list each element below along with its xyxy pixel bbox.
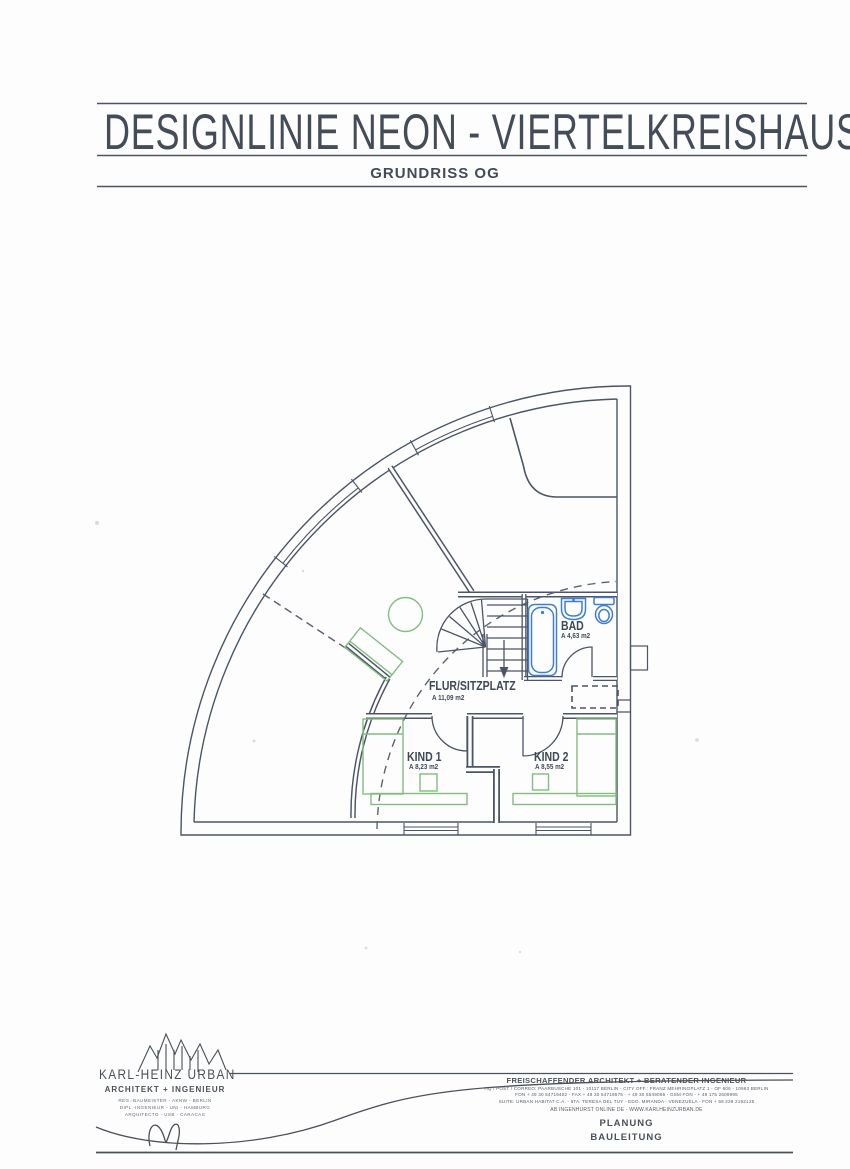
footer-heading: FREISCHAFFENDER ARCHITEKT + BERATENDER I… (460, 1077, 793, 1085)
architect-credential-1: REG.-BAUMEISTER - AKNW - BERLIN (100, 1099, 230, 1104)
loft-hatch-dashed-rect (572, 686, 618, 708)
architect-credential-2: DIPL.-INGENIEUR - UNI - HAMBURG (100, 1106, 230, 1111)
bed-kind-1 (363, 719, 403, 794)
stool-kind-2 (533, 774, 549, 790)
curved-partition-top-room (510, 418, 617, 497)
right-wall-details (617, 646, 648, 712)
service-planung: PLANUNG (460, 1119, 793, 1129)
washbasin (562, 599, 586, 620)
architect-credential-3: ARQUITECTO - USB - CARACAS (100, 1113, 230, 1118)
room-area-flur: A 11,09 m2 (432, 694, 471, 702)
round-table (389, 598, 423, 632)
desk-kind-2 (513, 794, 616, 805)
bathtub (529, 605, 557, 676)
logo-signature-squiggle (149, 1124, 179, 1150)
service-bauleitung: BAULEITUNG (460, 1133, 793, 1143)
sheet-title: DESIGNLINIE NEON - VIERTELKREISHAUS (104, 107, 850, 157)
footer-contact-block: FREISCHAFFENDER ARCHITEKT + BERATENDER I… (460, 1077, 793, 1142)
bath-door (562, 647, 593, 678)
stool-kind-1 (420, 774, 437, 791)
room-area-kind1: A 8,23 m2 (409, 763, 444, 771)
room-area-bad: A 4,63 m2 (561, 632, 596, 640)
footer-address-line: HQ / POST / CORREO: PAARBUSCHE 101 - 101… (460, 1087, 793, 1092)
bed-kind-2 (577, 719, 616, 796)
spiral-staircase (437, 599, 528, 680)
sofa (345, 628, 403, 681)
room-area-kind2: A 8,55 m2 (535, 763, 570, 771)
footer-web-line: AB INGENHURST ONLINE DE - WWW.KARLHEINZU… (460, 1108, 793, 1113)
kind1-door (432, 716, 467, 751)
scan-specks (95, 521, 699, 953)
footer-phone-line: FON + 49 30 54719402 - FAX + 49 30 54719… (460, 1093, 793, 1098)
chimney-block (631, 646, 648, 670)
architect-role: ARCHITEKT + INGENIEUR (100, 1086, 230, 1094)
room-label-flur: FLUR/SITZPLATZ (429, 680, 532, 693)
scanned-plan-sheet: DESIGNLINIE NEON - VIERTELKREISHAUS GRUN… (0, 0, 850, 1169)
sheet-subtitle: GRUNDRISS OG (97, 166, 773, 181)
desk-kind-1 (371, 794, 467, 805)
wall-niche (617, 700, 631, 712)
bottom-windows (404, 823, 591, 835)
architect-name: KARL-HEINZ URBAN (99, 1068, 254, 1082)
footer-venezuela-line: SUITE: URBAN HABITAT C.A. - 5TA. TERESA … (460, 1100, 793, 1105)
stair-direction-arrow (500, 640, 509, 678)
arc-windows (274, 406, 494, 567)
toilet (594, 598, 614, 624)
